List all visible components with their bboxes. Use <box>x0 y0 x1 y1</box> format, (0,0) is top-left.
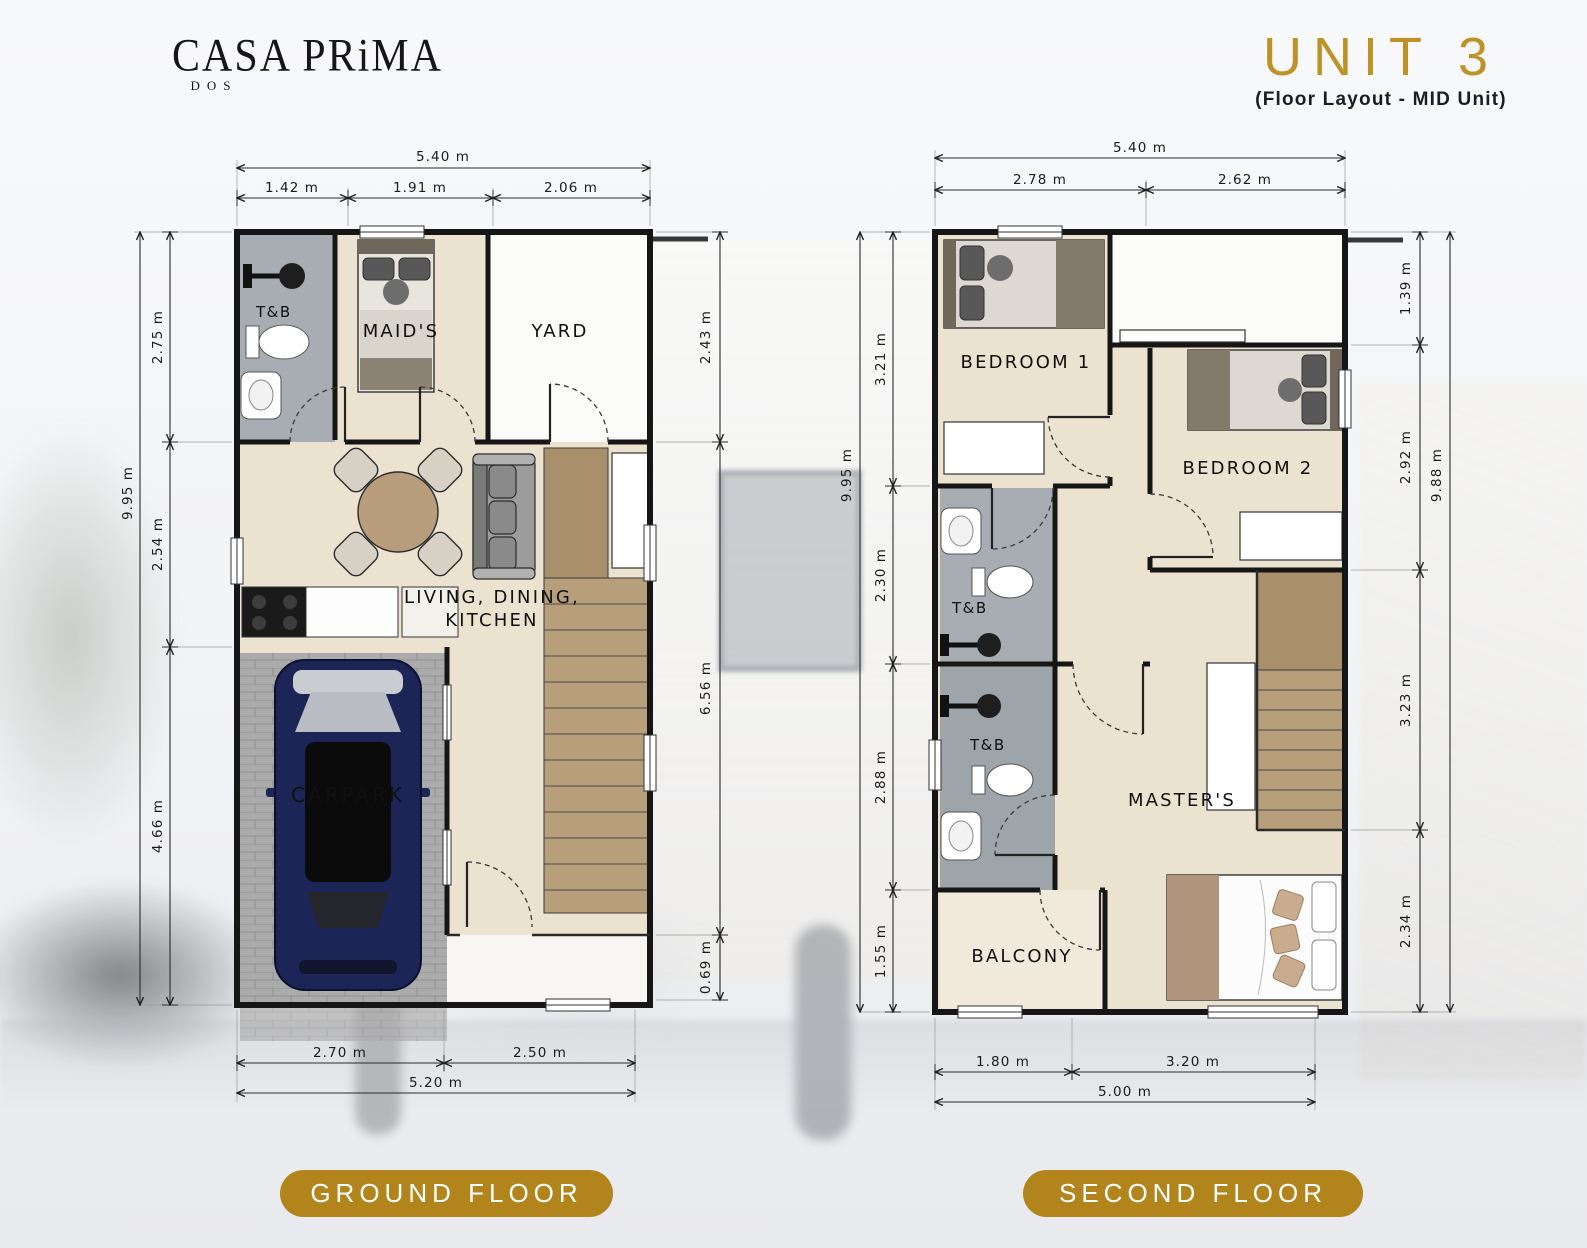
gf-dim-right-1: 2.43 m <box>698 310 714 364</box>
gf-dim-top-3: 2.06 m <box>544 180 598 196</box>
gf-dim-top-1: 1.42 m <box>265 180 319 196</box>
gf-dim-bottom-total: 5.20 m <box>409 1075 463 1091</box>
sf-dim-left-4: 1.55 m <box>873 924 889 978</box>
gf-dim-right-3: 0.69 m <box>698 940 714 994</box>
sf-dim-right-3: 3.23 m <box>1398 673 1414 727</box>
gf-sink-fixture <box>241 372 281 419</box>
gf-toilet-fixture <box>246 325 309 359</box>
gf-dim-left-3: 4.66 m <box>150 799 166 853</box>
sf-label-bedroom2: BEDROOM 2 <box>1183 458 1314 479</box>
sf-master-bed <box>1167 875 1342 1000</box>
sf-dim-bottom-total: 5.00 m <box>1098 1084 1152 1100</box>
gf-dim-bottom-1: 2.70 m <box>313 1045 367 1061</box>
unit-subtitle: (Floor Layout - MID Unit) <box>1255 89 1507 111</box>
gf-label-living-2: KITCHEN <box>445 610 538 631</box>
unit-title: UNIT 3 <box>1255 26 1507 88</box>
brand-subtitle: DOS <box>114 78 314 94</box>
gf-sofa <box>473 454 535 579</box>
sf-label-bedroom1: BEDROOM 1 <box>961 352 1092 373</box>
sf-label-tb2: T&B <box>969 736 1006 754</box>
sf-dim-top-2: 2.62 m <box>1218 172 1272 188</box>
gf-label-living-1: LIVING, DINING, <box>404 587 580 608</box>
gf-dim-left-1: 2.75 m <box>150 310 166 364</box>
sf-label-tb1: T&B <box>951 599 988 617</box>
sf-dim-bottom-2: 3.20 m <box>1166 1054 1220 1070</box>
gf-label-maids: MAID'S <box>363 321 440 342</box>
sf-dim-right-4: 2.34 m <box>1398 894 1414 948</box>
sf-dim-left-1: 3.21 m <box>873 332 889 386</box>
gf-label-carpark: CARPARK <box>291 783 405 807</box>
sf-dim-top-total: 5.40 m <box>1113 140 1167 156</box>
sf-bed2 <box>1188 350 1342 430</box>
gf-staircase <box>544 448 650 913</box>
gf-dim-top-total: 5.40 m <box>416 149 470 165</box>
sf-dim-left-2: 2.30 m <box>873 548 889 602</box>
gf-dim-left-2: 2.54 m <box>150 517 166 571</box>
sf-dim-right-2: 2.92 m <box>1398 430 1414 484</box>
gf-dim-right-2: 6.56 m <box>698 661 714 715</box>
gf-dim-bottom-2: 2.50 m <box>513 1045 567 1061</box>
gf-car <box>266 660 430 990</box>
gf-dim-left-total: 9.95 m <box>120 466 136 520</box>
brand-logo: CASA PRiMA DOS <box>172 32 372 94</box>
second-floor-plan: 5.40 m 2.78 m 2.62 m 9.95 m 3.21 m 2.30 … <box>820 140 1480 1110</box>
gf-label-yard: YARD <box>530 321 588 342</box>
sf-dim-right-total: 9.88 m <box>1429 448 1445 502</box>
brand-name: CASA PRiMA <box>172 29 372 83</box>
sf-staircase <box>1257 570 1345 830</box>
sf-dim-top-1: 2.78 m <box>1013 172 1067 188</box>
gf-label-tb: T&B <box>255 303 292 321</box>
sf-bed1 <box>944 240 1104 328</box>
sf-dim-left-3: 2.88 m <box>873 750 889 804</box>
sf-dim-left-total: 9.95 m <box>839 448 855 502</box>
sf-label-masters: MASTER'S <box>1128 790 1236 811</box>
sf-dim-right-1: 1.39 m <box>1398 261 1414 315</box>
unit-header: UNIT 3 (Floor Layout - MID Unit) <box>1255 26 1507 111</box>
ground-floor-plan: 5.40 m 1.42 m 1.91 m 2.06 m 9.95 m 2.75 … <box>120 140 780 1110</box>
sf-dim-bottom-1: 1.80 m <box>976 1054 1030 1070</box>
ground-floor-badge: GROUND FLOOR <box>280 1170 613 1217</box>
gf-maids-bed <box>358 240 434 392</box>
sf-label-balcony: BALCONY <box>971 946 1072 967</box>
gf-dim-top-2: 1.91 m <box>393 180 447 196</box>
second-floor-badge: SECOND FLOOR <box>1023 1170 1363 1217</box>
